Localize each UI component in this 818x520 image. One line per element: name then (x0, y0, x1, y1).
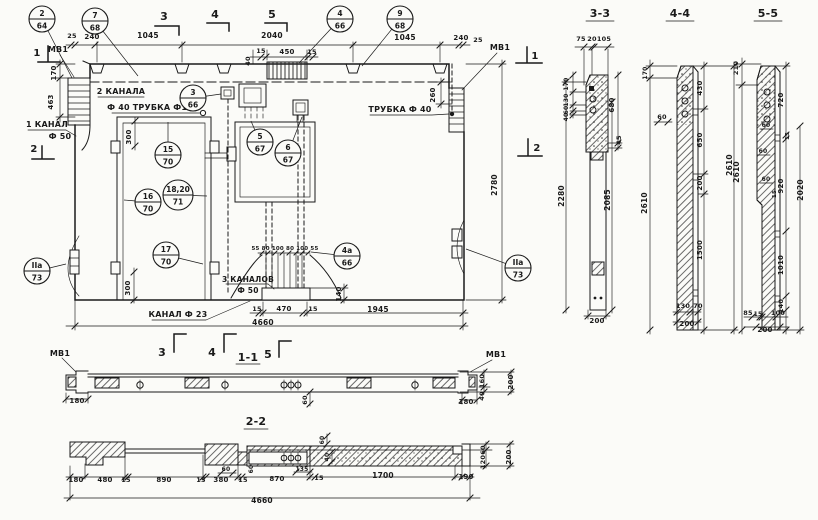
label-f50-bottom: Ф 50 (237, 286, 258, 295)
callout-4-66-top: 4 (337, 9, 342, 18)
callout-layer: 264768366466968157018,207116701770567667… (24, 6, 531, 284)
callout-2a-73-left-bot: 73 (32, 274, 42, 283)
dim-60c-s55: 60 (762, 176, 771, 183)
callout-3-66-bot: 66 (188, 101, 198, 110)
square-opening (235, 122, 315, 202)
dim-15a-s22: 15 (121, 476, 131, 484)
dim-100-s55: 100 (771, 309, 785, 317)
dim-1700-s22: 1700 (372, 471, 394, 480)
callout-16-70-top: 16 (143, 192, 153, 201)
dim-200-s33: 200 (589, 317, 604, 325)
dim-45-s33: 45 (615, 135, 623, 145)
callout-17-70-bot: 70 (161, 258, 171, 267)
label-f40-trubka-f15: Ф 40 ТРУБКА Ф15 (107, 103, 193, 112)
tube-f15-point (200, 110, 205, 115)
dim-180-s22: 180 (68, 476, 83, 484)
panel-working-drawing: МВ1МВ13452524010452040104524025154501540… (0, 0, 818, 520)
dim-920-s55: 920 (777, 178, 785, 193)
dim-2020-s55: 2020 (796, 179, 805, 201)
dim-60a-s55: 60 (762, 122, 771, 129)
dim-85-s55: 85 (743, 309, 753, 317)
callout-5-67: 567 (247, 121, 273, 155)
dim-870-s22: 870 (269, 475, 284, 483)
dim-60-s44: 60 (657, 113, 667, 121)
callout-18-20-71-bot: 71 (173, 198, 183, 207)
callout-16-70: 1670 (124, 189, 161, 215)
dim-300-door-bottom: 300 (124, 280, 132, 295)
dim-2280-s33: 2280 (557, 185, 566, 207)
callout-18-20-71-top: 18,20 (166, 185, 190, 194)
callout-6-67-bot: 67 (283, 156, 293, 165)
dim-450-grille: 450 (279, 48, 294, 56)
embedded-plates-s11 (95, 378, 455, 388)
dim-130-s44: 130 (676, 302, 690, 310)
dim-463-left: 463 (47, 94, 55, 109)
title-section-3-3: 3-3 (590, 7, 610, 20)
dim-25-top-left: 25 (67, 32, 77, 40)
callout-4-66-bot: 66 (335, 22, 345, 31)
callout-4a-66-top: 4а (342, 246, 352, 255)
dim-170-left: 170 (50, 65, 58, 80)
callout-9-68-bot: 68 (395, 22, 405, 31)
callout-2a-73-left-top: IIа (32, 261, 43, 270)
dim-190-s22: 190 (458, 473, 473, 481)
mark-4-bottom: 4 (208, 346, 216, 359)
label-kanal-f23: КАНАЛ Ф 23 (149, 310, 208, 319)
section-2-2-view (64, 429, 514, 501)
dim-170-s33: 170 (563, 77, 570, 90)
label-1-kanal: 1 КАНАЛ (26, 120, 68, 129)
title-section-4-4: 4-4 (670, 7, 691, 20)
dim-180-s11-right: 180 (458, 398, 473, 406)
mark-2-left: 2 (30, 144, 37, 155)
dim-140-plinth: 140 (335, 286, 343, 301)
mark-2-right: 2 (533, 143, 540, 154)
label-trubka-f40-right: ТРУБКА Ф 40 (368, 105, 431, 114)
dim-2610-s44-left: 2610 (640, 192, 649, 214)
dim-300-door-top: 300 (125, 129, 133, 144)
mark-5-bottom: 5 (264, 348, 272, 361)
callout-15-70-top: 15 (163, 145, 173, 154)
mark-5-top: 5 (268, 8, 276, 21)
callout-17-70-top: 17 (161, 245, 171, 254)
dim-200-s44: 200 (696, 175, 704, 190)
label-f50-left: Ф 50 (49, 132, 72, 141)
dim-15b-s55: 15 (772, 190, 778, 198)
dim-70-s44: 70 (693, 302, 703, 310)
dim-15b-s22: 15 (196, 476, 206, 484)
dim-40-s22: 40 (324, 453, 331, 462)
label-3-kanalov: 3 КАНАЛОВ (222, 275, 274, 284)
callout-4a-66-bot: 66 (342, 259, 352, 268)
title-section-1-1: 1-1 (238, 351, 258, 364)
dim-60b-s22: 60 (248, 465, 255, 474)
dim-480-s22: 480 (97, 476, 112, 484)
dim-2085-s33: 2085 (603, 189, 612, 211)
dim-15c-s55: 15 (754, 311, 763, 318)
callout-4-66: 466 (299, 6, 353, 63)
callout-3-66-top: 3 (190, 88, 195, 97)
callout-2a-73-right-bot: 73 (513, 271, 523, 280)
dim-170-s44: 170 (642, 66, 649, 79)
mark-1-left: 1 (33, 48, 40, 59)
mark-1-right: 1 (531, 51, 538, 62)
channel-symbols-s22 (281, 453, 301, 463)
label-mv1-left: МВ1 (48, 45, 68, 54)
dim-15a-s55: 15 (785, 132, 791, 140)
dim-15-grille-left: 15 (256, 47, 266, 55)
dim-15-plinth-right: 15 (308, 305, 318, 313)
dim-130-s33: 130 (563, 93, 570, 106)
tube-symbols-s11 (137, 380, 418, 390)
callout-15-70: 1570 (155, 122, 181, 168)
dim-2780-right: 2780 (490, 174, 499, 196)
dim-40-s33: 40 (563, 113, 570, 122)
dim-890-s22: 890 (156, 476, 171, 484)
mark-3-bottom: 3 (158, 346, 166, 359)
callout-2a-73-right: IIа73 (466, 249, 531, 281)
dim-40-grille: 40 (244, 56, 252, 66)
callout-15-70-bot: 70 (163, 158, 173, 167)
dim-650-s44: 650 (696, 132, 704, 147)
dim-15-plinth-left: 15 (252, 305, 262, 313)
callout-3-66: 366 (180, 85, 221, 111)
callout-5-67-top: 5 (257, 132, 262, 141)
dim-4660-s22: 4660 (251, 496, 273, 505)
label-mv1-right: МВ1 (490, 43, 510, 52)
callout-2-64-bot: 64 (37, 22, 47, 31)
dim-1945-bottom: 1945 (367, 305, 389, 314)
mark-3-top: 3 (160, 10, 168, 23)
dim-75-s33: 75 (576, 35, 586, 43)
dim-200-s11: 200 (507, 374, 515, 389)
callout-7-68-top: 7 (92, 11, 97, 20)
dim-180-s11-left: 180 (69, 397, 84, 405)
dim-470-plinth: 470 (276, 305, 291, 313)
dim-200-s55: 200 (757, 326, 772, 334)
dim-120-s22: 120 (479, 455, 487, 469)
callout-2a-73-left: IIа73 (24, 258, 66, 284)
dim-680-s33: 680 (608, 97, 616, 112)
dim-15d-s22: 15 (314, 474, 324, 482)
dim-200-s44: 200 (679, 320, 694, 328)
dim-40-s11: 40 (478, 391, 486, 401)
dim-60-s11: 60 (301, 395, 309, 405)
dim-1045-top-right: 1045 (394, 33, 416, 42)
dim-260-right: 260 (429, 87, 437, 102)
section-3-3-view (562, 21, 622, 319)
dim-430-s44: 430 (696, 80, 704, 95)
dim-1500-s44: 1500 (696, 240, 704, 260)
label-2-kanala: 2 КАНАЛА (97, 87, 146, 96)
dim-240-top-right: 240 (453, 34, 468, 42)
callout-2-64-top: 2 (39, 9, 44, 18)
dim-210-s55: 210 (732, 61, 740, 75)
dim-20-s33: 20 (587, 35, 597, 43)
section-4-4-view (646, 21, 738, 334)
dim-105-s33: 105 (597, 35, 611, 43)
dim-60c-s22: 60 (319, 436, 326, 445)
drawing-sheet: МВ1МВ13452524010452040104524025154501540… (0, 0, 818, 520)
dim-380-s22: 380 (213, 476, 228, 484)
title-section-2-2: 2-2 (246, 415, 266, 428)
dim-60b-s55: 60 (759, 148, 768, 155)
callout-16-70-bot: 70 (143, 205, 153, 214)
dim-60d-s22: 60 (479, 445, 487, 455)
dim-135-s22: 135 (295, 466, 308, 473)
dim-25-top-right: 25 (473, 36, 483, 44)
callout-7-68-bot: 68 (90, 24, 100, 33)
label-mv1-s11-right: МВ1 (486, 350, 506, 359)
callout-5-67-bot: 67 (255, 145, 265, 154)
dim-160-s11: 160 (478, 374, 486, 388)
dim-2610-s55: 2610 (732, 161, 741, 183)
callout-9-68-top: 9 (397, 9, 402, 18)
dim-2040-top: 2040 (261, 31, 283, 40)
callout-2a-73-right-top: IIа (513, 258, 524, 267)
callout-6-67-top: 6 (285, 143, 290, 152)
callout-18-20-71: 18,2071 (163, 180, 207, 210)
mark-4-top: 4 (211, 8, 219, 21)
dim-4660-main: 4660 (252, 318, 274, 327)
dim-200-s22: 200 (505, 449, 513, 464)
tube-f40-point (450, 112, 454, 116)
callout-17-70: 1770 (153, 242, 203, 268)
dim-1010-s55: 1010 (777, 255, 785, 275)
dim-1045-top-left: 1045 (137, 31, 159, 40)
dim-720-s55: 720 (777, 92, 785, 107)
section-1-1-view (62, 358, 514, 407)
title-section-5-5: 5-5 (758, 7, 778, 20)
label-mv1-s11-left: МВ1 (50, 349, 70, 358)
dim-55-80-100-row: 55 80 100 80 100 55 (252, 246, 319, 252)
dim-15c-s22: 15 (238, 476, 248, 484)
dim-60a-s22: 60 (222, 466, 231, 473)
